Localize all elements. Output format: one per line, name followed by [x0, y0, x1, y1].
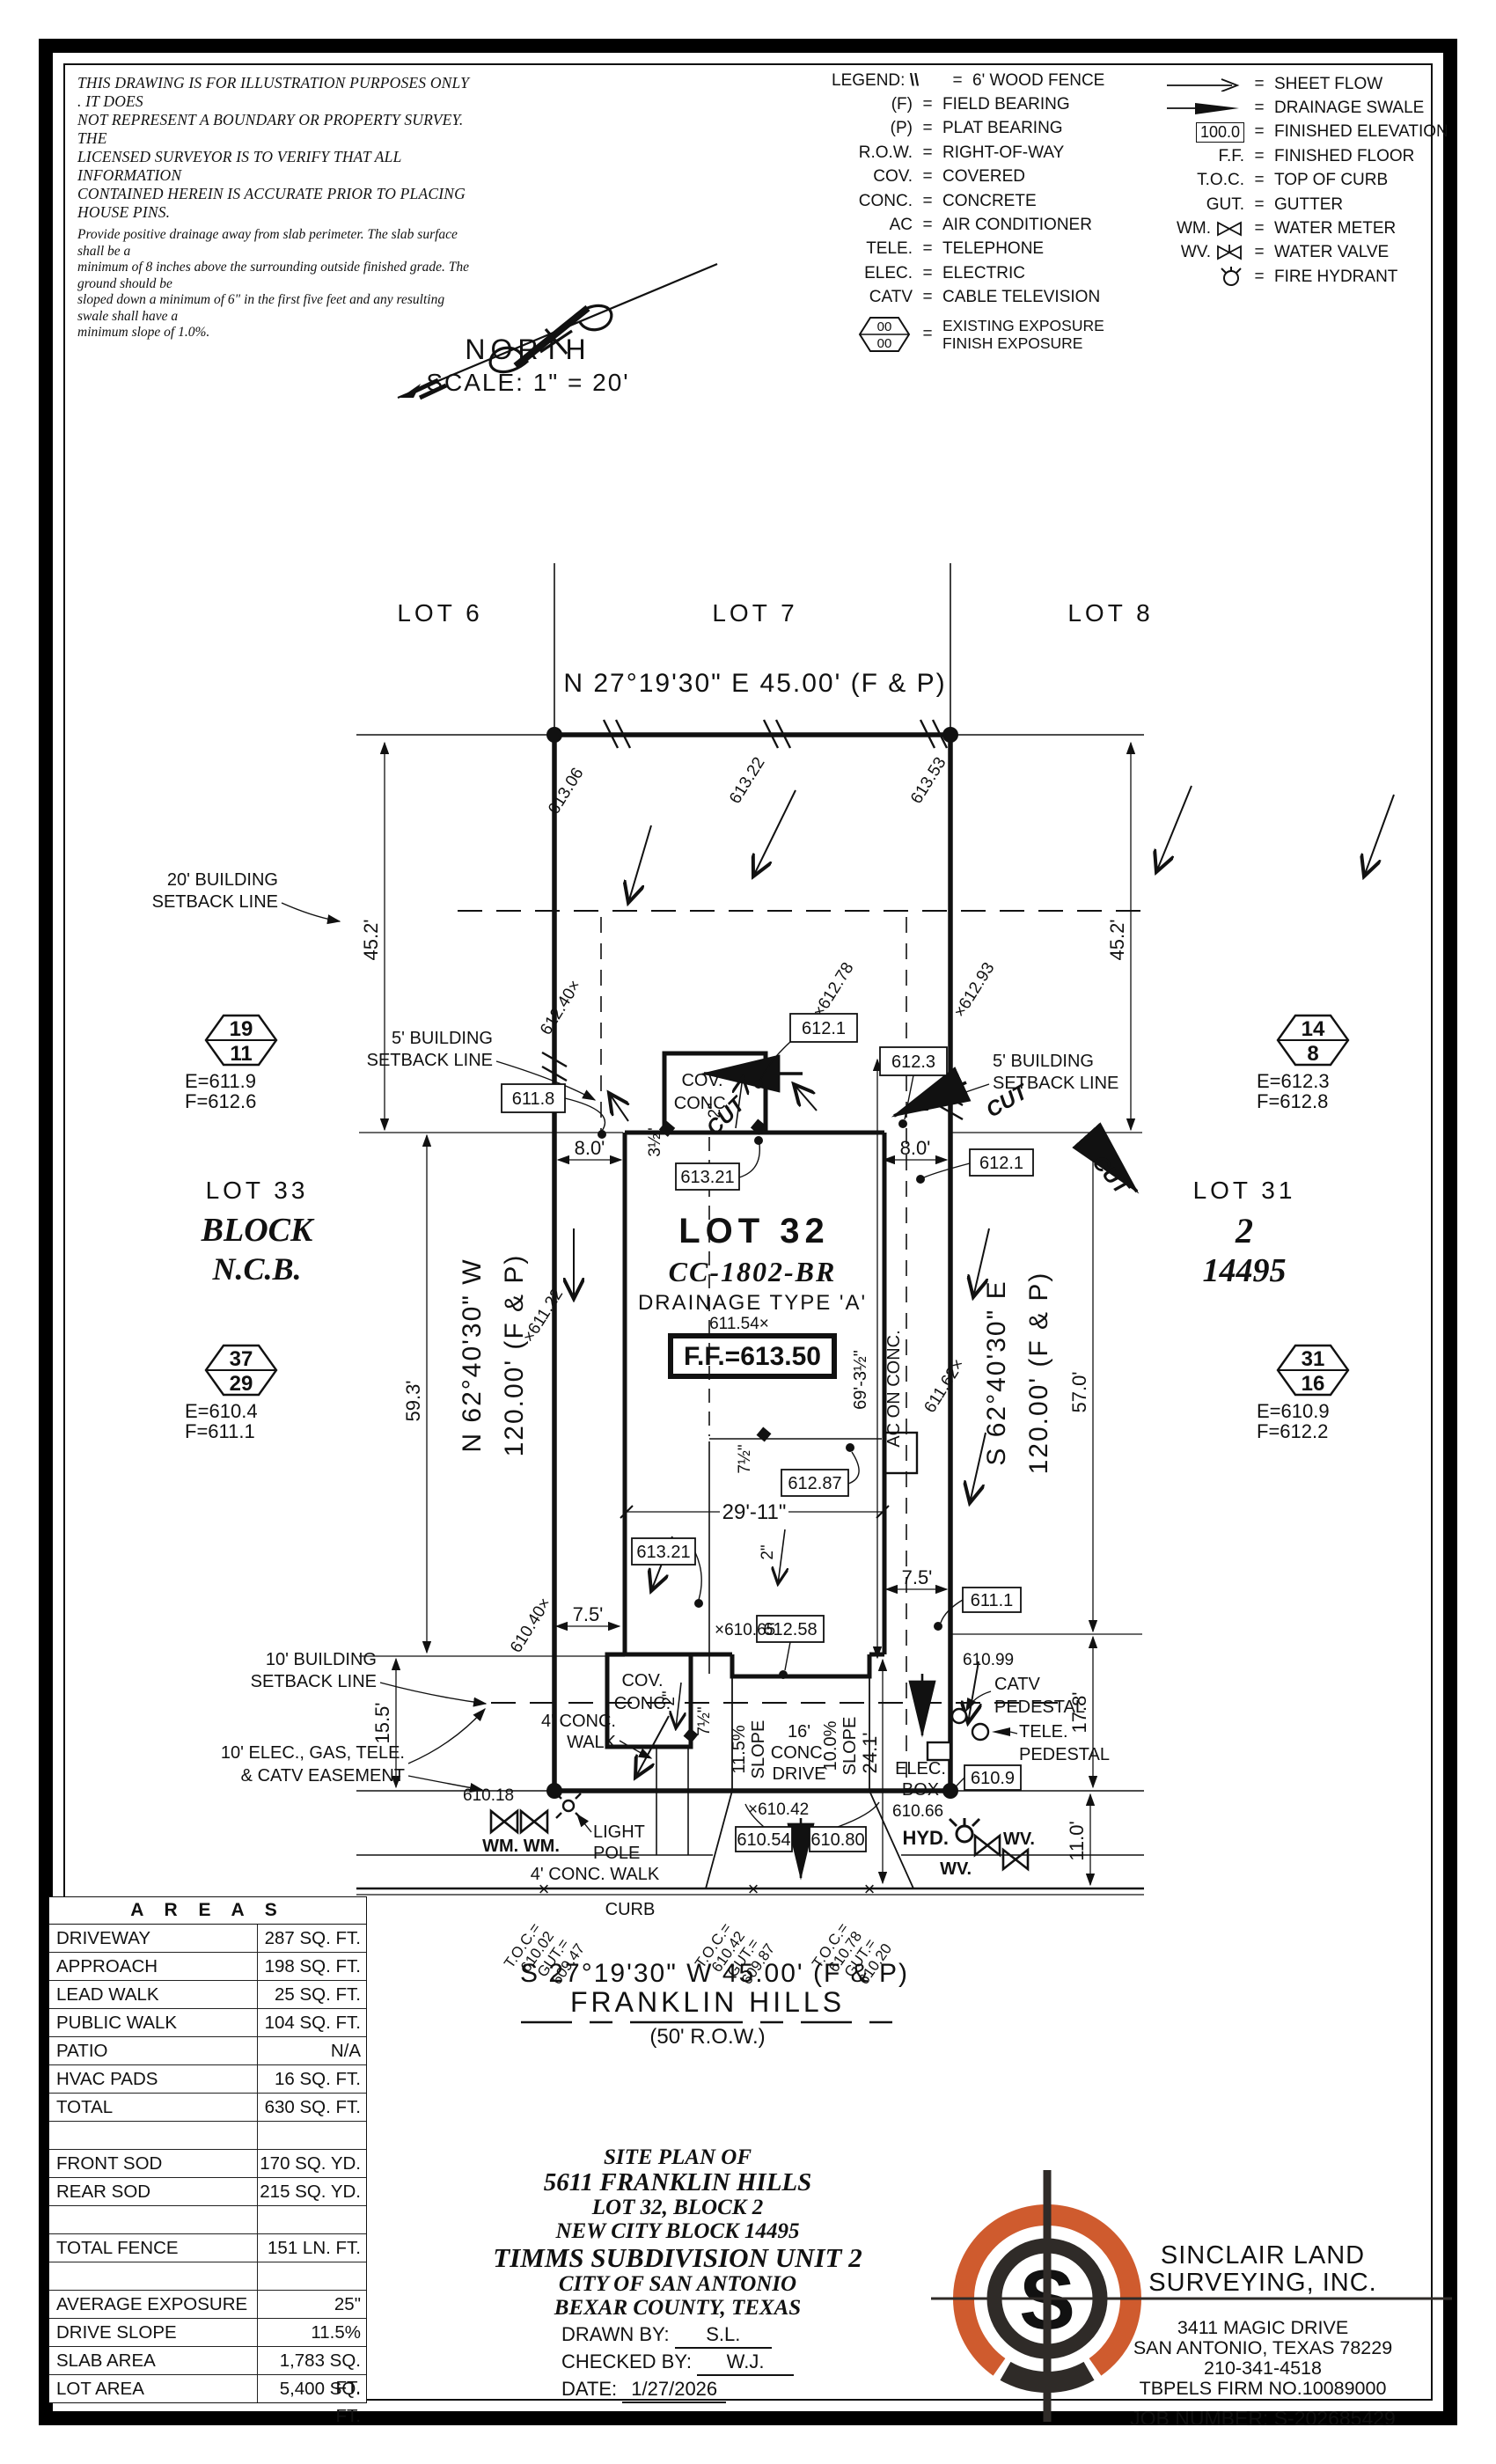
svg-text:F.F.=613.50: F.F.=613.50 [684, 1342, 821, 1371]
svg-text:00: 00 [877, 319, 892, 334]
legend-left: LEGEND: \\=6' WOOD FENCE (F)=FIELD BEARI… [832, 69, 1135, 359]
svg-text:LOT 33: LOT 33 [206, 1177, 309, 1204]
water-valve-icon [1214, 243, 1244, 262]
disclaimer-line: LICENSED SURVEYOR IS TO VERIFY THAT ALL … [77, 148, 472, 185]
svg-text:CATV: CATV [994, 1675, 1041, 1694]
svg-text:611.8: 611.8 [512, 1089, 555, 1109]
street-row: (50' R.O.W.) [649, 2025, 765, 2049]
hexagon-19-11: 19 11 E=611.9 F=612.6 [185, 1016, 276, 1112]
svg-text:612.1: 612.1 [979, 1154, 1023, 1173]
svg-text:7½": 7½" [736, 1444, 754, 1473]
north-label: NORTH [465, 334, 590, 365]
disclaimer-line: CONTAINED HEREIN IS ACCURATE PRIOR TO PL… [77, 185, 472, 222]
legend-symbol: GUT. [1137, 195, 1244, 215]
title-line: CITY OF SAN ANTONIO [449, 2272, 906, 2296]
firm-block: SINCLAIR LAND SURVEYING, INC. 3411 MAGIC… [1104, 2242, 1421, 2431]
svg-text:611.1: 611.1 [971, 1591, 1014, 1610]
svg-text:613.21: 613.21 [680, 1168, 734, 1187]
legend-symbol: (P) [832, 119, 913, 138]
svg-text:& CATV EASEMENT: & CATV EASEMENT [241, 1766, 405, 1786]
svg-text:COV.: COV. [621, 1671, 663, 1690]
side-bearing-right-1: S 62°40'30" E [982, 1280, 1011, 1465]
legend-label: FINISH EXPOSURE [942, 334, 1082, 352]
table-row: PATION/A [49, 2037, 366, 2065]
curb-label: CURB [605, 1900, 656, 1919]
legend-label: TOP OF CURB [1274, 171, 1388, 190]
legend-symbol: CATV [832, 288, 913, 307]
equals: = [1244, 99, 1274, 118]
svg-text:×610.42: ×610.42 [748, 1800, 809, 1819]
equals: = [913, 192, 942, 211]
walk-label: 4' CONC. WALK [531, 1865, 660, 1884]
equals: = [1244, 75, 1274, 94]
table-row: AVERAGE EXPOSURE25" [49, 2291, 366, 2319]
svg-text:SETBACK LINE: SETBACK LINE [367, 1051, 493, 1070]
water-meter-symbols [491, 1811, 547, 1832]
equals: = [1244, 219, 1274, 238]
table-row: SLAB AREA1,783 SQ. FT. [49, 2347, 366, 2375]
title-line: NEW CITY BLOCK 14495 [449, 2219, 906, 2243]
checked-by-value: W.J. [697, 2349, 794, 2376]
legend-label: SHEET FLOW [1274, 75, 1382, 94]
svg-text:612.1: 612.1 [802, 1019, 846, 1038]
svg-text:COV.: COV. [681, 1071, 722, 1090]
drainage-note-line: minimum slope of 1.0%. [77, 325, 472, 341]
water-meter-icon [1214, 220, 1244, 238]
table-row: LEAD WALK25 SQ. FT. [49, 1981, 366, 2009]
exposure-hexagon-icon: 00 00 [856, 312, 913, 356]
firm-name-2: SURVEYING, INC. [1104, 2270, 1421, 2297]
legend-label: PLAT BEARING [942, 119, 1063, 138]
checked-by-label: CHECKED BY: [561, 2350, 692, 2372]
lot6-label: LOT 6 [397, 599, 482, 627]
legend-symbol: CONC. [832, 192, 913, 211]
svg-text:SETBACK LINE: SETBACK LINE [152, 892, 278, 912]
lot8-label: LOT 8 [1067, 599, 1153, 627]
svg-text:612.3: 612.3 [891, 1052, 935, 1072]
svg-text:×: × [864, 1878, 876, 1900]
svg-text:612.40×: 612.40× [537, 977, 584, 1038]
light-pole-label-1: LIGHT [593, 1822, 645, 1842]
svg-text:10.0%: 10.0% [821, 1720, 840, 1771]
drawn-by-label: DRAWN BY: [561, 2323, 670, 2345]
table-row: DRIVEWAY287 SQ. FT. [49, 1925, 366, 1953]
date-label: DATE: [561, 2378, 617, 2400]
lot7-label: LOT 7 [712, 599, 797, 627]
table-row [49, 2262, 366, 2291]
svg-text:11.5%: 11.5% [730, 1725, 749, 1773]
svg-text:16': 16' [788, 1722, 810, 1742]
title-block: SITE PLAN OF 5611 FRANKLIN HILLS LOT 32,… [449, 2145, 906, 2403]
title-line: SITE PLAN OF [449, 2145, 906, 2169]
svg-text:CC-1802-BR: CC-1802-BR [669, 1256, 837, 1287]
hydrant-label: HYD. [902, 1827, 949, 1849]
svg-text:29'-11": 29'-11" [722, 1500, 787, 1524]
finished-elevation-icon: 100.0 [1196, 122, 1244, 143]
svg-text:31: 31 [1302, 1347, 1325, 1371]
svg-text:F=611.1: F=611.1 [185, 1420, 255, 1442]
svg-text:2": 2" [706, 1103, 724, 1118]
svg-text:SLOPE: SLOPE [749, 1720, 768, 1779]
legend-label: RIGHT-OF-WAY [942, 143, 1064, 163]
svg-text:15.5': 15.5' [371, 1702, 393, 1743]
svg-text:45.2': 45.2' [360, 919, 382, 960]
svg-text:613.53: 613.53 [907, 754, 950, 807]
firm-address-2: SAN ANTONIO, TEXAS 78229 [1104, 2338, 1421, 2358]
svg-text:2": 2" [660, 1690, 678, 1705]
date-value: 1/27/2026 [622, 2376, 726, 2403]
job-number: JOB NUMBER: S-202685429 [1104, 2407, 1421, 2431]
wm-label: WM. WM. [482, 1837, 560, 1856]
svg-text:E=610.4: E=610.4 [185, 1400, 258, 1422]
svg-text:11: 11 [230, 1042, 252, 1066]
svg-text:8: 8 [1307, 1042, 1318, 1066]
table-row: TOTAL FENCE151 LN. FT. [49, 2234, 366, 2262]
firm-phone: 210-341-4518 [1104, 2358, 1421, 2379]
svg-text:2": 2" [759, 1544, 777, 1559]
table-row: APPROACH198 SQ. FT. [49, 1953, 366, 1981]
svg-text:10' BUILDING: 10' BUILDING [266, 1650, 377, 1669]
svg-text:37: 37 [230, 1347, 253, 1371]
disclaimer-note: THIS DRAWING IS FOR ILLUSTRATION PURPOSE… [77, 74, 472, 341]
svg-text:7.5': 7.5' [902, 1566, 933, 1588]
svg-text:57.0': 57.0' [1068, 1371, 1090, 1412]
table-row: FRONT SOD170 SQ. YD. [49, 2150, 366, 2178]
svg-text:5' BUILDING: 5' BUILDING [392, 1029, 493, 1048]
disclaimer-line: THIS DRAWING IS FOR ILLUSTRATION PURPOSE… [77, 74, 472, 111]
areas-table: A R E A S DRIVEWAY287 SQ. FT. APPROACH19… [48, 1896, 367, 2403]
svg-text:10' ELEC., GAS, TELE.: 10' ELEC., GAS, TELE. [221, 1743, 405, 1763]
scale-label: SCALE: 1" = 20' [426, 369, 629, 396]
svg-text:29: 29 [230, 1372, 253, 1396]
legend-symbol: TELE. [832, 239, 913, 259]
legend-symbol: WV. [1181, 243, 1211, 262]
svg-text:CONC.: CONC. [771, 1743, 827, 1763]
disclaimer-line: NOT REPRESENT A BOUNDARY OR PROPERTY SUR… [77, 111, 472, 148]
legend-symbol: (F) [832, 95, 913, 114]
equals: = [913, 167, 942, 187]
title-line: 5611 FRANKLIN HILLS [449, 2169, 906, 2196]
svg-text:4' CONC.: 4' CONC. [541, 1712, 616, 1731]
equals: = [913, 95, 942, 114]
legend-label: WATER VALVE [1274, 243, 1389, 262]
lot32-block: LOT 32 CC-1802-BR DRAINAGE TYPE 'A' 611.… [638, 1212, 867, 1376]
svg-text:CUT: CUT [1088, 1151, 1135, 1201]
legend-label: EXISTING EXPOSURE [942, 317, 1104, 334]
equals: = [1244, 195, 1274, 215]
legend-label: AIR CONDITIONER [942, 216, 1092, 235]
svg-text:16: 16 [1302, 1372, 1325, 1396]
svg-text:N.C.B.: N.C.B. [211, 1251, 301, 1287]
legend-symbol: T.O.C. [1137, 171, 1244, 190]
svg-text:7.5': 7.5' [573, 1603, 604, 1625]
svg-text:610.18: 610.18 [463, 1786, 514, 1805]
areas-title: A R E A S [49, 1897, 366, 1925]
svg-text:×610.65: ×610.65 [715, 1621, 775, 1639]
survey-sheet: NORTH SCALE: 1" = 20' LOT 6 LOT 7 LOT 8 … [0, 0, 1496, 2464]
svg-text:613.22: 613.22 [726, 754, 769, 807]
legend-right: =SHEET FLOW =DRAINAGE SWALE 100.0=FINISH… [1137, 72, 1464, 290]
svg-text:610.54: 610.54 [737, 1830, 790, 1850]
equals: = [913, 119, 942, 138]
svg-text:611.62×: 611.62× [920, 1356, 968, 1417]
street-name: FRANKLIN HILLS [570, 1986, 845, 2018]
firm-tbpels: TBPELS FIRM NO.10089000 [1104, 2379, 1421, 2399]
svg-text:TELE.: TELE. [1019, 1722, 1068, 1742]
legend-label: GUTTER [1274, 195, 1343, 215]
legend-label: FIELD BEARING [942, 95, 1070, 114]
svg-text:E=610.9: E=610.9 [1257, 1400, 1330, 1422]
equals: = [1244, 122, 1274, 142]
rear-bearing: N 27°19'30" E 45.00' (F & P) [563, 669, 946, 698]
svg-text:611.54×: 611.54× [709, 1315, 769, 1333]
side-bearing-right-2: 120.00' (F & P) [1024, 1272, 1053, 1475]
svg-text:SETBACK LINE: SETBACK LINE [251, 1672, 377, 1691]
svg-text:2: 2 [1235, 1211, 1253, 1250]
equals: = [913, 239, 942, 259]
equals: = [1244, 268, 1274, 287]
legend-label: CABLE TELEVISION [942, 288, 1100, 307]
table-row: LOT AREA5,400 SQ. FT. [49, 2375, 366, 2402]
svg-text:E=611.9: E=611.9 [185, 1070, 256, 1092]
legend-symbol: COV. [832, 167, 913, 187]
svg-text:45.2': 45.2' [1106, 919, 1128, 960]
svg-text:ELEC.: ELEC. [895, 1759, 946, 1778]
equals: = [913, 325, 942, 344]
svg-text:14: 14 [1302, 1017, 1325, 1041]
table-row [49, 2122, 366, 2150]
drainage-note-line: Provide positive drainage away from slab… [77, 227, 472, 260]
svg-text:F=612.8: F=612.8 [1257, 1090, 1328, 1112]
legend-label: FINISHED ELEVATION [1274, 122, 1448, 142]
table-row: PUBLIC WALK104 SQ. FT. [49, 2009, 366, 2037]
legend-symbol: WM. [1177, 219, 1211, 238]
svg-text:LOT 32: LOT 32 [678, 1212, 830, 1250]
title-line: TIMMS SUBDIVISION UNIT 2 [449, 2243, 906, 2272]
svg-text:×612.93: ×612.93 [950, 959, 998, 1021]
wv-label-2: WV. [940, 1859, 972, 1879]
svg-text:5' BUILDING: 5' BUILDING [993, 1052, 1094, 1071]
svg-text:612.87: 612.87 [788, 1474, 841, 1493]
equals: = [1244, 171, 1274, 190]
svg-text:PEDESTAL: PEDESTAL [1019, 1745, 1110, 1764]
title-line: LOT 32, BLOCK 2 [449, 2196, 906, 2219]
equals: = [1244, 147, 1274, 166]
svg-text:610.66: 610.66 [892, 1802, 943, 1821]
svg-text:SLOPE: SLOPE [840, 1717, 860, 1776]
svg-text:610.40×: 610.40× [507, 1595, 554, 1656]
svg-text:LOT 31: LOT 31 [1193, 1177, 1296, 1204]
svg-text:613.06: 613.06 [545, 765, 588, 818]
svg-text:F=612.2: F=612.2 [1257, 1420, 1328, 1442]
legend-label: TELEPHONE [942, 239, 1044, 259]
wood-fence-icon: \\ [910, 71, 920, 90]
svg-text:19: 19 [230, 1017, 253, 1041]
table-row: DRIVE SLOPE11.5% [49, 2319, 366, 2347]
legend-symbol: F.F. [1137, 147, 1244, 166]
svg-text:×: × [748, 1878, 759, 1900]
drawn-by-value: S.L. [675, 2321, 772, 2349]
table-row [49, 2206, 366, 2234]
svg-text:PEDESTAL: PEDESTAL [994, 1698, 1085, 1717]
svg-text:BOX: BOX [902, 1780, 939, 1800]
legend-label: WATER METER [1274, 219, 1396, 238]
equals: = [913, 216, 942, 235]
firm-name-1: SINCLAIR LAND [1104, 2242, 1421, 2270]
svg-text:20' BUILDING: 20' BUILDING [167, 870, 278, 890]
hexagon-37-29: 37 29 E=610.4 F=611.1 [185, 1346, 276, 1442]
table-row: TOTAL630 SQ. FT. [49, 2094, 366, 2122]
svg-text:8.0': 8.0' [900, 1137, 931, 1159]
legend-label: ELECTRIC [942, 264, 1025, 283]
svg-text:AC ON CONC.: AC ON CONC. [884, 1330, 904, 1447]
firm-address-1: 3411 MAGIC DRIVE [1104, 2318, 1421, 2338]
legend-label: FIRE HYDRANT [1274, 268, 1397, 287]
table-row: REAR SOD215 SQ. YD. [49, 2178, 366, 2206]
svg-text:610.80: 610.80 [810, 1830, 864, 1850]
svg-text:WALK: WALK [567, 1733, 617, 1752]
drainage-note-line: sloped down a minimum of 6" in the first… [77, 292, 472, 325]
wv-label-1: WV. [1003, 1830, 1035, 1849]
legend-label: DRAINAGE SWALE [1274, 99, 1424, 118]
svg-text:7½": 7½" [695, 1706, 714, 1735]
legend-symbol: AC [832, 216, 913, 235]
legend-title: LEGEND: [832, 71, 905, 90]
svg-text:DRAINAGE TYPE 'A': DRAINAGE TYPE 'A' [638, 1291, 867, 1315]
equals: = [913, 264, 942, 283]
title-line: BEXAR COUNTY, TEXAS [449, 2296, 906, 2320]
svg-text:00: 00 [877, 336, 892, 351]
equals: = [942, 71, 972, 91]
svg-text:E=612.3: E=612.3 [1257, 1070, 1330, 1092]
light-pole-label-2: POLE [593, 1844, 640, 1863]
equals: = [1244, 243, 1274, 262]
hexagon-31-16: 31 16 E=610.9 F=612.2 [1257, 1346, 1348, 1442]
drainage-swale-icon [1165, 101, 1244, 115]
svg-text:×612.78: ×612.78 [810, 959, 857, 1021]
legend-symbol: R.O.W. [832, 143, 913, 163]
legend-label: 6' WOOD FENCE [972, 71, 1104, 91]
legend-label: FINISHED FLOOR [1274, 147, 1414, 166]
legend-symbol: ELEC. [832, 264, 913, 283]
svg-text:610.9: 610.9 [971, 1769, 1015, 1788]
legend-label: COVERED [942, 167, 1025, 187]
side-bearing-left-2: 120.00' (F & P) [500, 1254, 529, 1457]
table-row: HVAC PADS16 SQ. FT. [49, 2065, 366, 2094]
svg-text:69'-3½": 69'-3½" [851, 1350, 870, 1410]
svg-text:59.3': 59.3' [402, 1380, 424, 1421]
svg-text:613.21: 613.21 [636, 1543, 690, 1562]
svg-text:BLOCK: BLOCK [201, 1212, 315, 1249]
drainage-note-line: minimum of 8 inches above the surroundin… [77, 260, 472, 292]
sheet-flow-icon [1165, 77, 1244, 92]
side-bearing-left-1: N 62°40'30" W [458, 1258, 487, 1452]
property-lines [356, 563, 1144, 1791]
svg-text:8.0': 8.0' [575, 1137, 605, 1159]
hexagon-14-8: 14 8 E=612.3 F=612.8 [1257, 1016, 1348, 1112]
light-pole-icon [556, 1793, 591, 1832]
svg-text:610.99: 610.99 [963, 1651, 1014, 1669]
svg-text:×: × [539, 1878, 550, 1900]
svg-text:DRIVE: DRIVE [772, 1764, 825, 1784]
equals: = [913, 143, 942, 163]
svg-text:14495: 14495 [1203, 1252, 1287, 1289]
svg-text:3½": 3½" [646, 1127, 664, 1156]
legend-label: CONCRETE [942, 192, 1037, 211]
equals: = [913, 288, 942, 307]
svg-text:F=612.6: F=612.6 [185, 1090, 256, 1112]
fire-hydrant-icon [1218, 266, 1244, 289]
